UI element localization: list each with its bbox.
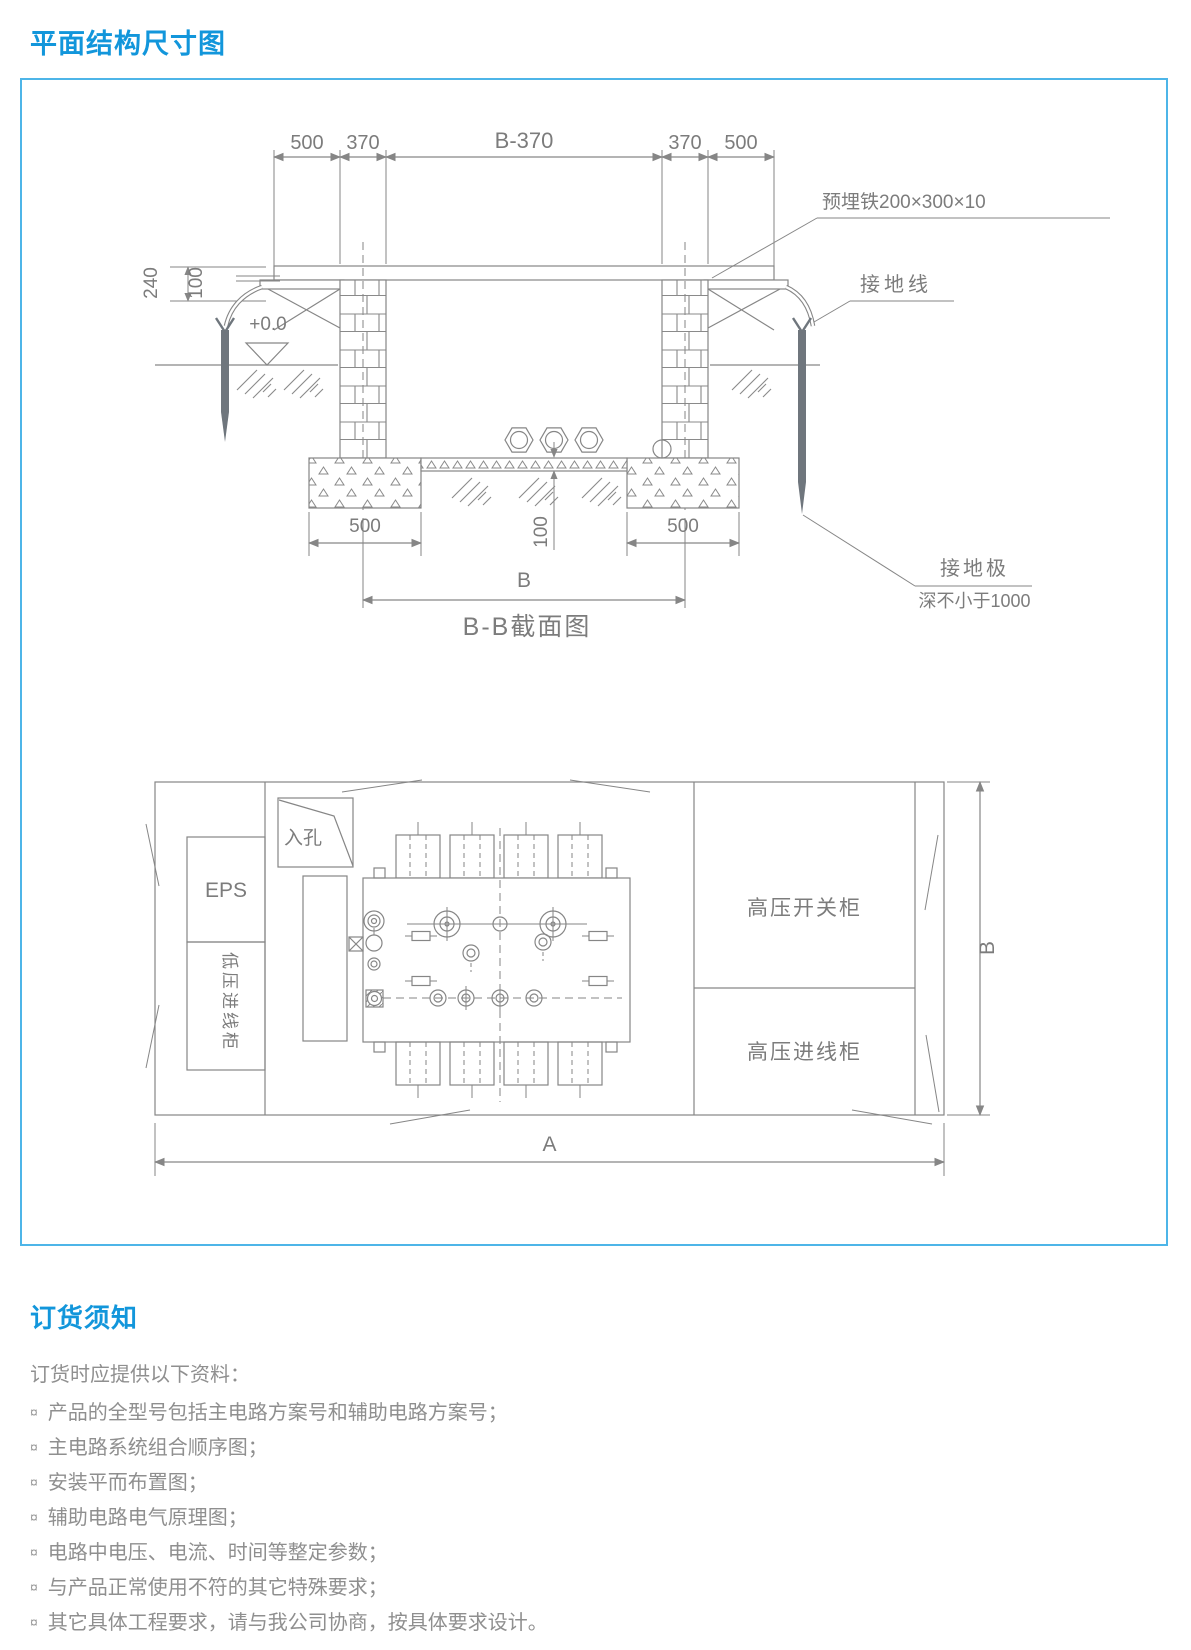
ground-rod-left (221, 330, 229, 442)
ordering-item: ¤产品的全型号包括主电路方案号和辅助电路方案号； (30, 1396, 508, 1425)
technical-drawing (22, 80, 1166, 1244)
bullet-icon: ¤ (30, 1579, 38, 1595)
page: { "header": { "title": "平面结构尺寸图" }, "dra… (0, 0, 1191, 1650)
drawing-frame: 500 370 B-370 370 500 240 100 +0.0 预埋铁20… (20, 78, 1168, 1246)
level-marker: +0.0 (240, 314, 296, 336)
dim-500-right-top: 500 (708, 132, 774, 154)
dim-500-foundation-right: 500 (627, 516, 739, 538)
bullet-icon: ¤ (30, 1509, 38, 1525)
annotation-ground-rod: 接地极 (917, 558, 1032, 580)
ordering-item-text: 辅助电路电气原理图； (48, 1507, 248, 1529)
ordering-item-text: 安装平而布置图； (48, 1472, 208, 1494)
annotation-embedded-plate: 预埋铁200×300×10 (822, 192, 986, 214)
ordering-item-text: 与产品正常使用不符的其它特殊要求； (48, 1577, 388, 1599)
dim-100-height: 100 (186, 258, 208, 308)
label-lv-incoming-cabinet: 低压进线柜 (214, 952, 240, 1064)
ordering-item-text: 产品的全型号包括主电路方案号和辅助电路方案号； (48, 1402, 508, 1424)
dim-b-plan: B (977, 923, 999, 973)
ordering-item-text: 其它具体工程要求，请与我公司协商，按具体要求设计。 (48, 1612, 548, 1634)
annotation-ground-rod-depth: 深不小于1000 (902, 590, 1047, 612)
label-hv-switch-cabinet: 高压开关柜 (694, 898, 915, 920)
bullet-icon: ¤ (30, 1404, 38, 1420)
dim-240-height: 240 (141, 258, 163, 308)
dim-370-left-top: 370 (340, 132, 386, 154)
bullet-icon: ¤ (30, 1614, 38, 1630)
bullet-icon: ¤ (30, 1439, 38, 1455)
dim-a-plan: A (155, 1134, 944, 1156)
ordering-item: ¤安装平而布置图； (30, 1466, 208, 1495)
bullet-icon: ¤ (30, 1544, 38, 1560)
label-manhole: 入孔 (284, 828, 322, 850)
ordering-item: ¤电路中电压、电流、时间等整定参数； (30, 1536, 388, 1565)
label-eps-cabinet: EPS (187, 880, 265, 902)
section-caption: B-B截面图 (422, 616, 632, 638)
ordering-item: ¤其它具体工程要求，请与我公司协商，按具体要求设计。 (30, 1606, 548, 1635)
annotation-ground-wire: 接地线 (860, 274, 932, 296)
ground-rod-right (798, 330, 806, 514)
dim-100-depth: 100 (531, 507, 553, 557)
page-title: 平面结构尺寸图 (30, 22, 226, 61)
ordering-item: ¤辅助电路电气原理图； (30, 1501, 248, 1530)
ordering-title: 订货须知 (30, 1298, 138, 1335)
ordering-item-text: 电路中电压、电流、时间等整定参数； (48, 1542, 388, 1564)
ordering-intro: 订货时应提供以下资料： (30, 1358, 250, 1387)
ordering-item-text: 主电路系统组合顺序图； (48, 1437, 268, 1459)
bullet-icon: ¤ (30, 1474, 38, 1490)
dim-500-left-top: 500 (274, 132, 340, 154)
dim-b-span: B (363, 570, 685, 592)
dim-370-right-top: 370 (662, 132, 708, 154)
label-hv-incoming-cabinet: 高压进线柜 (694, 1042, 915, 1064)
dim-b-370-top: B-370 (386, 130, 662, 152)
ordering-item: ¤与产品正常使用不符的其它特殊要求； (30, 1571, 388, 1600)
ordering-item: ¤主电路系统组合顺序图； (30, 1431, 268, 1460)
dim-500-foundation-left: 500 (309, 516, 421, 538)
